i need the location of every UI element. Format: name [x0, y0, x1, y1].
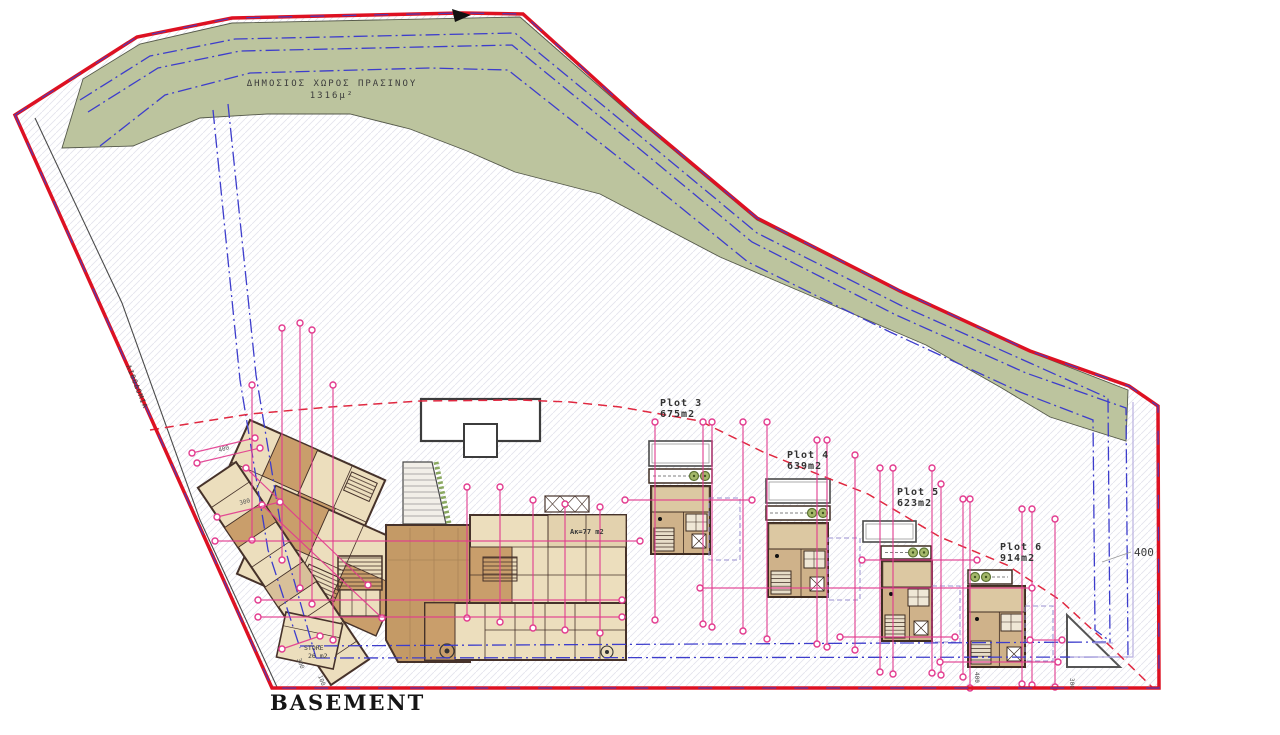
dimension-dot [279, 557, 285, 563]
dimension-dot [1019, 506, 1025, 512]
dimension-dot [1059, 637, 1065, 643]
right-setback-dim: 400 [1134, 546, 1154, 559]
dimension-dot [938, 672, 944, 678]
dimension-dot [214, 514, 220, 520]
dimension-dot [764, 419, 770, 425]
dimension-dot [709, 419, 715, 425]
dimension-dot [194, 460, 200, 466]
dimension-dot [497, 619, 503, 625]
dimension-dot [464, 615, 470, 621]
dimension-dot [530, 625, 536, 631]
dimension-dot [764, 636, 770, 642]
plot6-area: 914m2 [1000, 553, 1035, 564]
dimension-dot [967, 496, 973, 502]
dim-400b-label: 400 [973, 672, 980, 683]
dimension-dot [249, 537, 255, 543]
dimension-dot [309, 327, 315, 333]
dimension-dot [890, 465, 896, 471]
dimension-dot [309, 601, 315, 607]
plot6-label: Plot 6 [1000, 542, 1042, 553]
dimension-dot [814, 437, 820, 443]
site-plan-canvas: ΔΗΜΟΣΙΟΣ ΧΩΡΟΣ ΠΡΑΣΙΝΟΥ 1316μ² Plot 3 67… [0, 0, 1280, 735]
dimension-dot [852, 452, 858, 458]
dimension-dot [1027, 637, 1033, 643]
dimension-dot [330, 382, 336, 388]
dimension-dot [1055, 659, 1061, 665]
plot3-area: 675m2 [660, 409, 695, 420]
dimension-dot [749, 497, 755, 503]
dimension-dot [1019, 681, 1025, 687]
green-belt-label: ΔΗΜΟΣΙΟΣ ΧΩΡΟΣ ΠΡΑΣΙΝΟΥ [247, 79, 418, 89]
dimension-dot [562, 501, 568, 507]
green-belt-area: 1316μ² [310, 91, 355, 101]
dimension-dot [637, 538, 643, 544]
dimension-dot [929, 670, 935, 676]
dimension-dot [619, 614, 625, 620]
dimension-dot [243, 465, 249, 471]
plot5-label: Plot 5 [897, 487, 939, 498]
dimension-dot [279, 325, 285, 331]
plot5-area: 623m2 [897, 498, 932, 509]
dimension-dot [700, 621, 706, 627]
dimension-dot [740, 628, 746, 634]
dimension-dot [952, 634, 958, 640]
dimension-dot [597, 504, 603, 510]
dim-300c-label: 300 [1068, 678, 1075, 689]
dimension-dot [255, 597, 261, 603]
dimension-dot [740, 419, 746, 425]
dimension-dot [877, 465, 883, 471]
dimension-dot [562, 627, 568, 633]
dimension-dot [1029, 585, 1035, 591]
plot4-area: 639m2 [787, 461, 822, 472]
dimension-dot [279, 646, 285, 652]
dimension-dot [824, 437, 830, 443]
dimension-dot [837, 634, 843, 640]
dimension-dot [877, 669, 883, 675]
dimension-dot [1029, 506, 1035, 512]
dimension-dot [257, 445, 263, 451]
dimension-dot [709, 624, 715, 630]
dimension-dot [255, 614, 261, 620]
plot3-label: Plot 3 [660, 398, 702, 409]
dimension-dot [464, 484, 470, 490]
dimension-dot [929, 465, 935, 471]
dimension-dot [824, 644, 830, 650]
dimension-dot [960, 496, 966, 502]
dimension-dot [852, 647, 858, 653]
dimension-dot [859, 557, 865, 563]
dimension-dot [697, 585, 703, 591]
store-area-label: 26 m2 [308, 652, 328, 660]
apartment-area-label: Aκ=77 m2 [570, 528, 604, 536]
dimension-dot [890, 671, 896, 677]
basement-site-plan-drawing: ΔΗΜΟΣΙΟΣ ΧΩΡΟΣ ΠΡΑΣΙΝΟΥ 1316μ² Plot 3 67… [0, 0, 1280, 735]
dimension-dot [622, 497, 628, 503]
dimension-dot [330, 637, 336, 643]
dimension-dot [530, 497, 536, 503]
dimension-dot [277, 499, 283, 505]
dimension-dot [252, 435, 258, 441]
dimension-dot [937, 659, 943, 665]
dimension-dot [960, 674, 966, 680]
plot4-label: Plot 4 [787, 450, 829, 461]
dimension-dot [297, 585, 303, 591]
dimension-dot [700, 419, 706, 425]
dimension-dot [297, 320, 303, 326]
dimension-dot [212, 538, 218, 544]
villa-unit-plot4 [766, 479, 830, 597]
dimension-dot [619, 597, 625, 603]
dimension-dot [1052, 516, 1058, 522]
dimension-dot [365, 582, 371, 588]
dimension-dot [652, 617, 658, 623]
dimension-dot [814, 641, 820, 647]
dimension-dot [974, 557, 980, 563]
dimension-dot [597, 630, 603, 636]
dimension-dot [317, 633, 323, 639]
dimension-dot [497, 484, 503, 490]
store-label: STORE [304, 644, 324, 652]
dimension-dot [379, 615, 385, 621]
basement-title: BASEMENT [270, 690, 425, 715]
dimension-dot [249, 382, 255, 388]
dimension-dot [652, 419, 658, 425]
dimension-dot [189, 450, 195, 456]
